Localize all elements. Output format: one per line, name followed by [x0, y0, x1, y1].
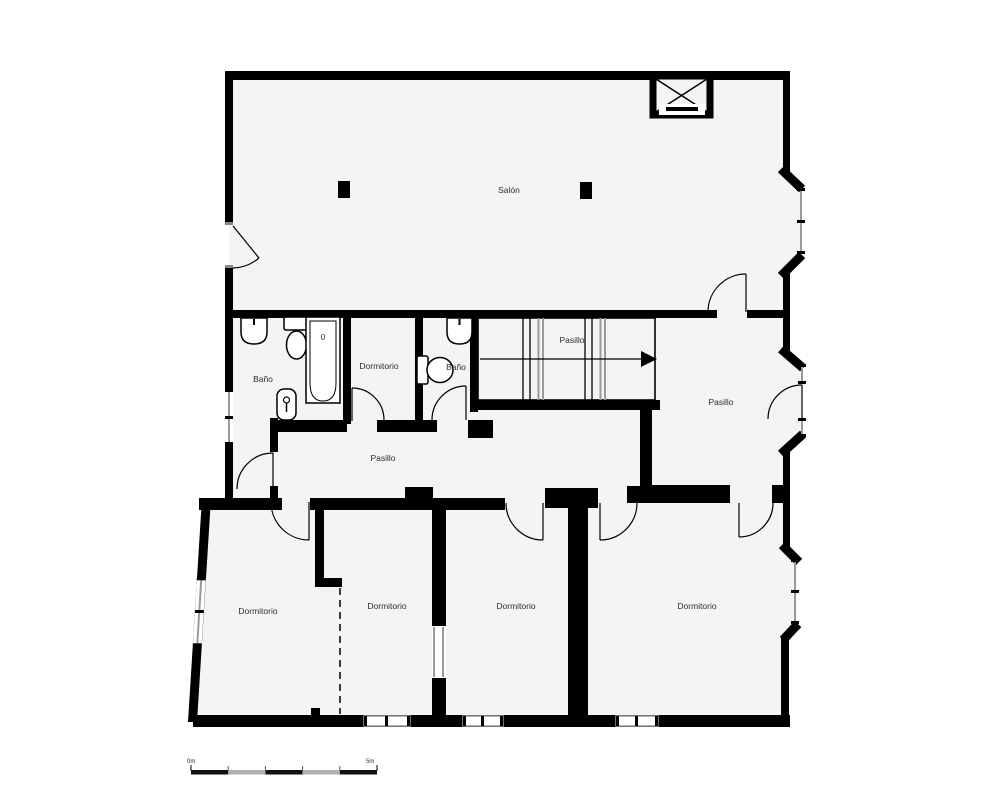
- bathtub-mark: 0: [321, 333, 326, 342]
- wall-segment: [783, 80, 790, 172]
- wall-segment: [783, 451, 790, 488]
- wall-segment: [781, 637, 789, 718]
- wall-segment: [783, 272, 790, 318]
- door-jamb: [225, 222, 233, 225]
- wall-segment: [225, 266, 233, 390]
- salon-floor: [229, 76, 801, 314]
- wall-segment: [640, 405, 652, 498]
- column-icon: [338, 181, 350, 198]
- wall-segment: [627, 486, 730, 503]
- room-label-dormitorio-s2: Dormitorio: [367, 601, 406, 611]
- room-label-bano-left: Baño: [253, 374, 273, 384]
- window-icon: [432, 626, 446, 678]
- room-label-pasillo-center: Pasillo: [370, 453, 395, 463]
- wall-segment: [377, 420, 437, 432]
- wall-segment: [315, 578, 342, 587]
- room-label-bano-right: Baño: [446, 362, 466, 372]
- window-icon: [463, 716, 503, 726]
- column-icon: [580, 182, 592, 199]
- wall-segment: [545, 488, 598, 508]
- wall-segment: [270, 418, 278, 452]
- room-label-pasillo-right: Pasillo: [708, 397, 733, 407]
- elevator-shaft-icon: [653, 76, 710, 115]
- room-label-dormitorio-s3: Dormitorio: [496, 601, 535, 611]
- room-label-dormitorio-small: Dormitorio: [359, 361, 398, 371]
- wall-segment: [468, 420, 493, 438]
- wall-segment: [568, 508, 588, 718]
- bidet-icon: [277, 389, 296, 420]
- wall-segment: [270, 420, 347, 432]
- wall-segment: [315, 500, 324, 580]
- wall-segment: [343, 314, 351, 424]
- bathtub-icon: [306, 317, 340, 403]
- scale-bar-icon: 0m 5m: [187, 759, 377, 775]
- room-label-pasillo-stairs: Pasillo: [559, 335, 584, 345]
- door-jamb: [225, 265, 233, 268]
- room-label-dormitorio-se: Dormitorio: [677, 601, 716, 611]
- floor-plan-drawing: Salón Baño Dormitorio Baño Pasillo Pasil…: [0, 0, 1000, 800]
- wall-segment: [783, 500, 790, 548]
- room-label-salon: Salón: [498, 185, 520, 195]
- window-icon: [364, 716, 410, 726]
- wall-segment: [225, 71, 233, 224]
- wall-segment: [405, 487, 433, 500]
- window-icon: [225, 389, 233, 445]
- sink-icon: [241, 318, 267, 344]
- floor-plan-page: Salón Baño Dormitorio Baño Pasillo Pasil…: [0, 0, 1000, 800]
- wall-segment: [199, 498, 282, 510]
- wall-segment: [432, 678, 446, 718]
- scale-end-label: 5m: [366, 759, 374, 765]
- wall-segment: [470, 400, 660, 410]
- window-icon: [616, 716, 658, 726]
- scale-start-label: 0m: [187, 759, 195, 765]
- room-label-dormitorio-sw: Dormitorio: [238, 606, 277, 616]
- sink-icon: [447, 318, 472, 344]
- wall-segment: [432, 500, 446, 626]
